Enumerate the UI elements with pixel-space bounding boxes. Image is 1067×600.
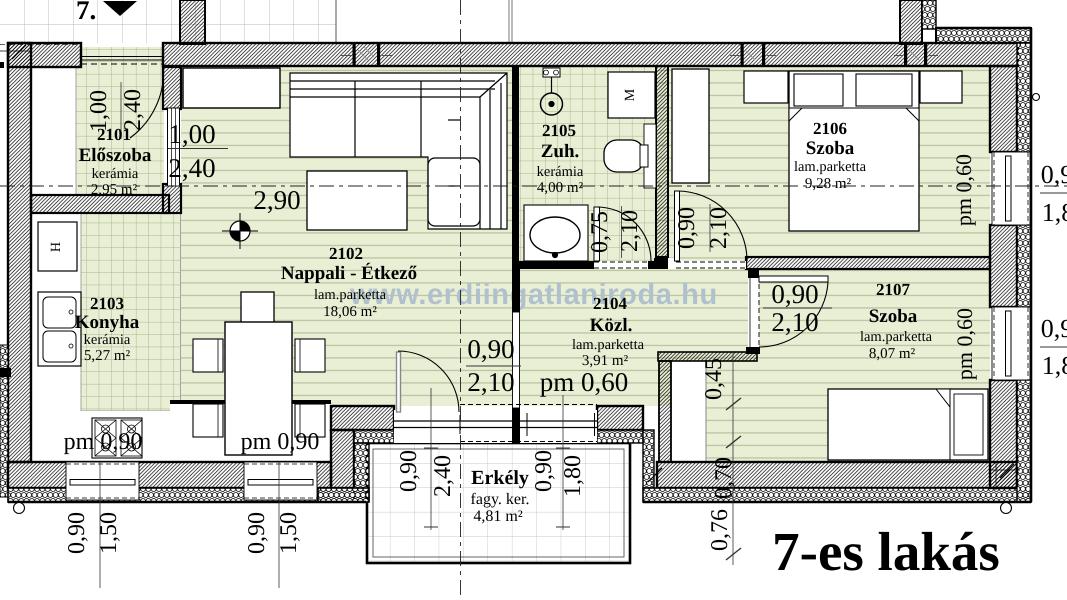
svg-text:2,40: 2,40 [430, 455, 456, 497]
svg-text:Előszoba: Előszoba [79, 145, 152, 166]
svg-text:0,76: 0,76 [707, 509, 733, 551]
svg-text:1,00: 1,00 [86, 90, 112, 132]
svg-text:kerámia: kerámia [92, 166, 139, 182]
svg-text:2,10: 2,10 [617, 210, 643, 252]
svg-text:lam.parketta: lam.parketta [860, 329, 933, 345]
svg-text:kerámia: kerámia [537, 164, 584, 180]
svg-text:fagy. ker.: fagy. ker. [471, 491, 530, 508]
svg-text:2104: 2104 [593, 294, 628, 313]
svg-text:Közl.: Közl. [590, 315, 633, 336]
svg-text:lam.parketta: lam.parketta [794, 159, 867, 175]
svg-text:2,95 m²: 2,95 m² [91, 182, 138, 198]
svg-text:2,10: 2,10 [467, 367, 514, 397]
svg-text:4,00 m²: 4,00 m² [537, 180, 584, 196]
svg-text:2102: 2102 [329, 244, 363, 263]
svg-text:lam.parketta: lam.parketta [314, 287, 387, 303]
svg-text:0,90: 0,90 [467, 334, 514, 364]
svg-text:pm 0,60: pm 0,60 [951, 154, 976, 226]
svg-text:kerámia: kerámia [84, 332, 131, 348]
svg-text:0,9: 0,9 [1041, 160, 1067, 189]
svg-text:Zuh.: Zuh. [541, 141, 580, 162]
svg-text:2105: 2105 [542, 121, 576, 140]
svg-text:2,90: 2,90 [253, 185, 300, 215]
svg-text:Nappali - Étkező: Nappali - Étkező [281, 262, 417, 284]
svg-text:2106: 2106 [813, 119, 847, 138]
svg-text:H: H [49, 242, 64, 252]
svg-text:0,90: 0,90 [674, 207, 700, 249]
svg-text:lam.parketta: lam.parketta [572, 337, 645, 353]
svg-text:0,45: 0,45 [701, 358, 727, 400]
svg-text:9,28 m²: 9,28 m² [805, 176, 852, 192]
svg-text:1,50: 1,50 [96, 512, 122, 554]
svg-text:5,27 m²: 5,27 m² [84, 348, 131, 364]
svg-text:1,00: 1,00 [168, 119, 215, 149]
svg-text:7-es lakás: 7-es lakás [772, 521, 1000, 582]
svg-text:0,90: 0,90 [531, 450, 557, 492]
svg-text:2,10: 2,10 [706, 207, 732, 249]
svg-text:0,90: 0,90 [771, 279, 818, 309]
svg-text:7.: 7. [76, 0, 96, 25]
svg-text:2107: 2107 [876, 280, 911, 299]
svg-text:2,10: 2,10 [771, 307, 818, 337]
svg-text:1,50: 1,50 [276, 512, 302, 554]
svg-text:2,40: 2,40 [168, 153, 215, 183]
svg-text:2,40: 2,40 [120, 89, 146, 131]
svg-text:0,70: 0,70 [711, 457, 737, 499]
svg-text:1,8: 1,8 [1042, 351, 1067, 380]
svg-text:18,06 m²: 18,06 m² [323, 304, 377, 320]
svg-text:0,90: 0,90 [64, 512, 90, 554]
svg-text:pm 0,90: pm 0,90 [64, 429, 143, 455]
svg-text:pm 0,90: pm 0,90 [241, 429, 320, 455]
svg-text:1,80: 1,80 [560, 455, 586, 497]
svg-text:Szoba: Szoba [806, 138, 855, 159]
svg-text:4,81 m²: 4,81 m² [473, 508, 522, 525]
svg-text:Erkély: Erkély [471, 467, 529, 489]
svg-text:1,8: 1,8 [1042, 198, 1067, 227]
svg-text:0,90: 0,90 [396, 450, 422, 492]
svg-text:Szoba: Szoba [869, 306, 918, 327]
svg-text:0,75: 0,75 [587, 211, 613, 253]
svg-text:2103: 2103 [90, 294, 124, 313]
svg-text:0,9: 0,9 [1041, 314, 1067, 343]
svg-text:M: M [623, 88, 638, 101]
svg-text:0,90: 0,90 [244, 512, 270, 554]
svg-text:8,07 m²: 8,07 m² [869, 346, 916, 362]
svg-text:Konyha: Konyha [75, 312, 140, 333]
svg-text:pm 0,60: pm 0,60 [952, 308, 977, 380]
svg-text:pm 0,60: pm 0,60 [540, 367, 629, 397]
